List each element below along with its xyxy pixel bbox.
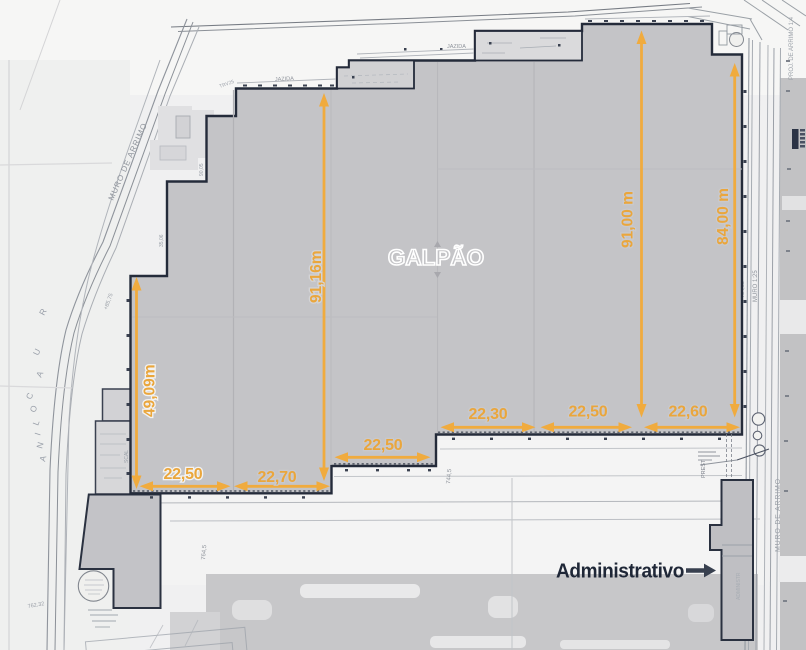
svg-text:ADMINISTR: ADMINISTR — [736, 572, 742, 600]
svg-text:PROJ. DE ARRIMO 1:4: PROJ. DE ARRIMO 1:4 — [789, 16, 795, 80]
svg-text:22,50: 22,50 — [568, 404, 607, 421]
svg-text:84,00 m: 84,00 m — [715, 188, 732, 245]
svg-text:GALPÃO: GALPÃO — [388, 245, 484, 270]
svg-text:SCAL: SCAL — [124, 450, 130, 463]
svg-text:22,60: 22,60 — [668, 404, 707, 421]
svg-text:91,16m: 91,16m — [308, 250, 325, 303]
svg-text:Administrativo: Administrativo — [556, 561, 684, 583]
svg-text:PREST: PREST — [701, 459, 707, 478]
svg-text:35,06: 35,06 — [159, 234, 165, 247]
svg-text:MURO DE ARRIMO: MURO DE ARRIMO — [775, 478, 782, 552]
svg-text:22,50: 22,50 — [363, 437, 402, 454]
svg-text:91,00 m: 91,00 m — [620, 191, 637, 248]
svg-text:JAZIDA: JAZIDA — [275, 76, 295, 83]
svg-text:49,09m: 49,09m — [142, 364, 159, 417]
svg-text:MURO 1:25: MURO 1:25 — [753, 270, 759, 302]
svg-text:90,05: 90,05 — [199, 163, 205, 176]
svg-text:22,30: 22,30 — [468, 406, 507, 423]
svg-text:22,50: 22,50 — [163, 466, 202, 483]
svg-text:22,70: 22,70 — [257, 469, 296, 486]
